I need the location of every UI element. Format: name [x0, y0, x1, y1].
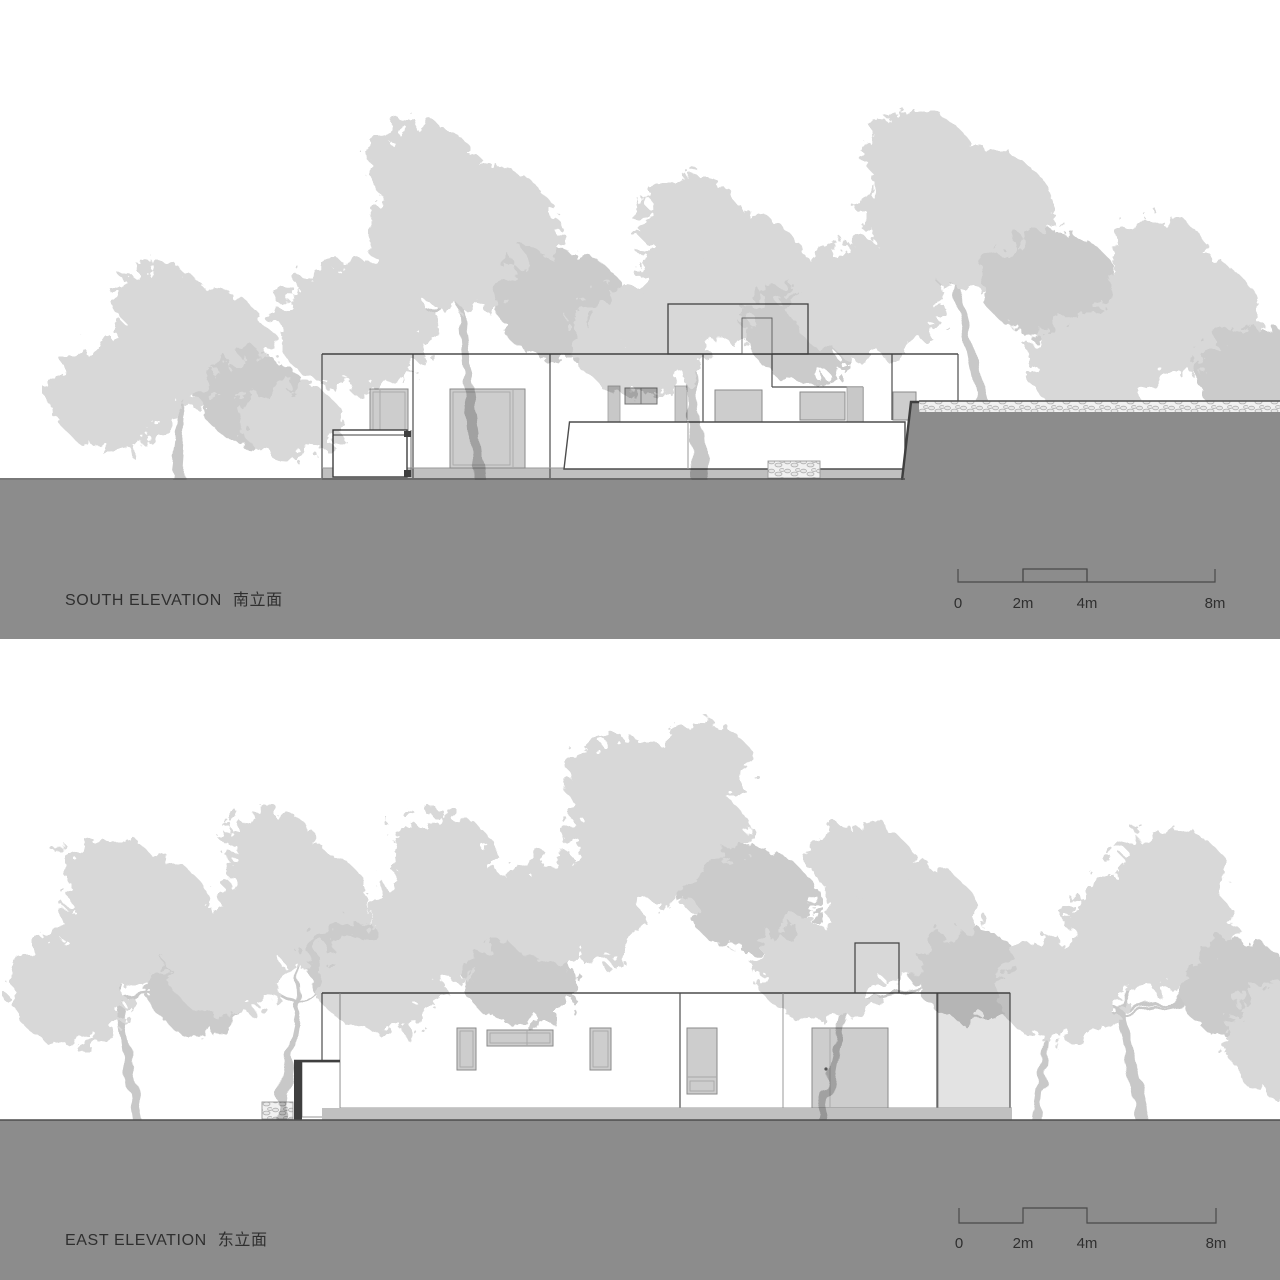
tree-canopy [995, 830, 1280, 1095]
elevation-drawing: SOUTH ELEVATION南立面 0 2m 4m 8m [0, 0, 1280, 1280]
scale-tick-label: 4m [1077, 595, 1098, 612]
scale-tick-label: 8m [1206, 1235, 1227, 1252]
window [590, 1028, 611, 1070]
window [487, 1030, 553, 1046]
east-elevation-label: EAST ELEVATION东立面 [65, 1231, 268, 1249]
window [370, 389, 408, 433]
window [687, 1028, 717, 1094]
east-plinth [322, 1108, 1012, 1120]
tree [495, 722, 815, 965]
architectural-sheet: SOUTH ELEVATION南立面 0 2m 4m 8m [0, 0, 1280, 1280]
door [450, 389, 525, 468]
gravel-strip [919, 401, 1280, 412]
window [457, 1028, 476, 1070]
stone-step [768, 461, 820, 478]
planter-box [333, 430, 411, 477]
scale-tick-label: 2m [1013, 595, 1034, 612]
east-elevation-panel: EAST ELEVATION东立面 0 2m 4m 8m [0, 722, 1280, 1280]
scale-tick-label: 4m [1077, 1235, 1098, 1252]
scale-tick-label: 0 [955, 1235, 963, 1252]
scale-tick-label: 0 [954, 595, 962, 612]
south-elevation-label: SOUTH ELEVATION南立面 [65, 591, 283, 609]
scale-tick-label: 2m [1013, 1235, 1034, 1252]
scale-tick-label: 8m [1205, 595, 1226, 612]
courtyard-wall [564, 422, 905, 469]
tree [995, 830, 1280, 1130]
south-elevation-panel: SOUTH ELEVATION南立面 0 2m 4m 8m [0, 110, 1280, 639]
tree-canopy [495, 722, 815, 965]
east-ground [0, 1120, 1280, 1280]
door-handle [824, 1067, 827, 1070]
